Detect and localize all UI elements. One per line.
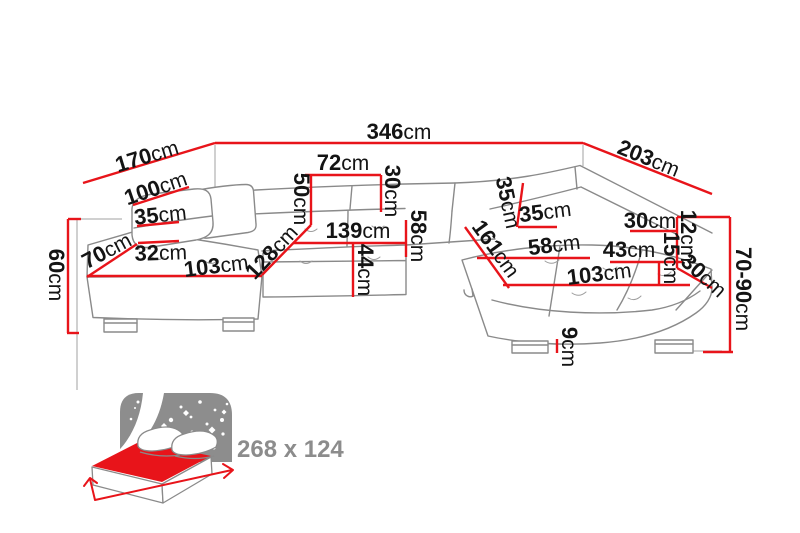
dim-label-15: 15cm <box>659 232 684 284</box>
dim-label-70-90: 70-90cm <box>731 247 756 331</box>
sofa-dimension-diagram: 346cm 170cm 203cm 100cm 35cm 70cm 32cm 1… <box>0 0 800 533</box>
sofa-leg <box>104 319 137 332</box>
sofa-leg <box>655 340 693 353</box>
dim-label-139: 139cm <box>326 218 391 243</box>
sofa-leg <box>223 318 254 331</box>
sleeper-function-icon: 268 x 124 <box>84 393 344 503</box>
sofa-middle-foot <box>464 289 473 297</box>
dim-label-50: 50cm <box>289 173 314 225</box>
dim-label-60: 60cm <box>44 249 69 301</box>
sofa-bed-icon <box>92 427 217 503</box>
dim-label-346: 346cm <box>367 119 432 144</box>
dim-label-44: 44cm <box>353 244 378 296</box>
dim-label-58-seat: 58cm <box>406 210 431 262</box>
dim-label-32: 32cm <box>134 239 187 266</box>
dim-label-203: 203cm <box>614 134 683 181</box>
dim-label-30-right: 30cm <box>624 208 676 233</box>
sofa-leg <box>512 341 548 353</box>
sofa-left-chaise-front <box>87 276 262 320</box>
sleeping-size-label: 268 x 124 <box>237 436 344 463</box>
dim-label-43: 43cm <box>603 237 655 262</box>
diagram-canvas: 346cm 170cm 203cm 100cm 35cm 70cm 32cm 1… <box>0 0 800 533</box>
dim-label-72: 72cm <box>317 150 369 175</box>
dim-label-30-backrest: 30cm <box>380 165 405 217</box>
dim-label-9: 9cm <box>557 327 582 367</box>
dim-label-35-corner: 35cm <box>518 196 573 227</box>
